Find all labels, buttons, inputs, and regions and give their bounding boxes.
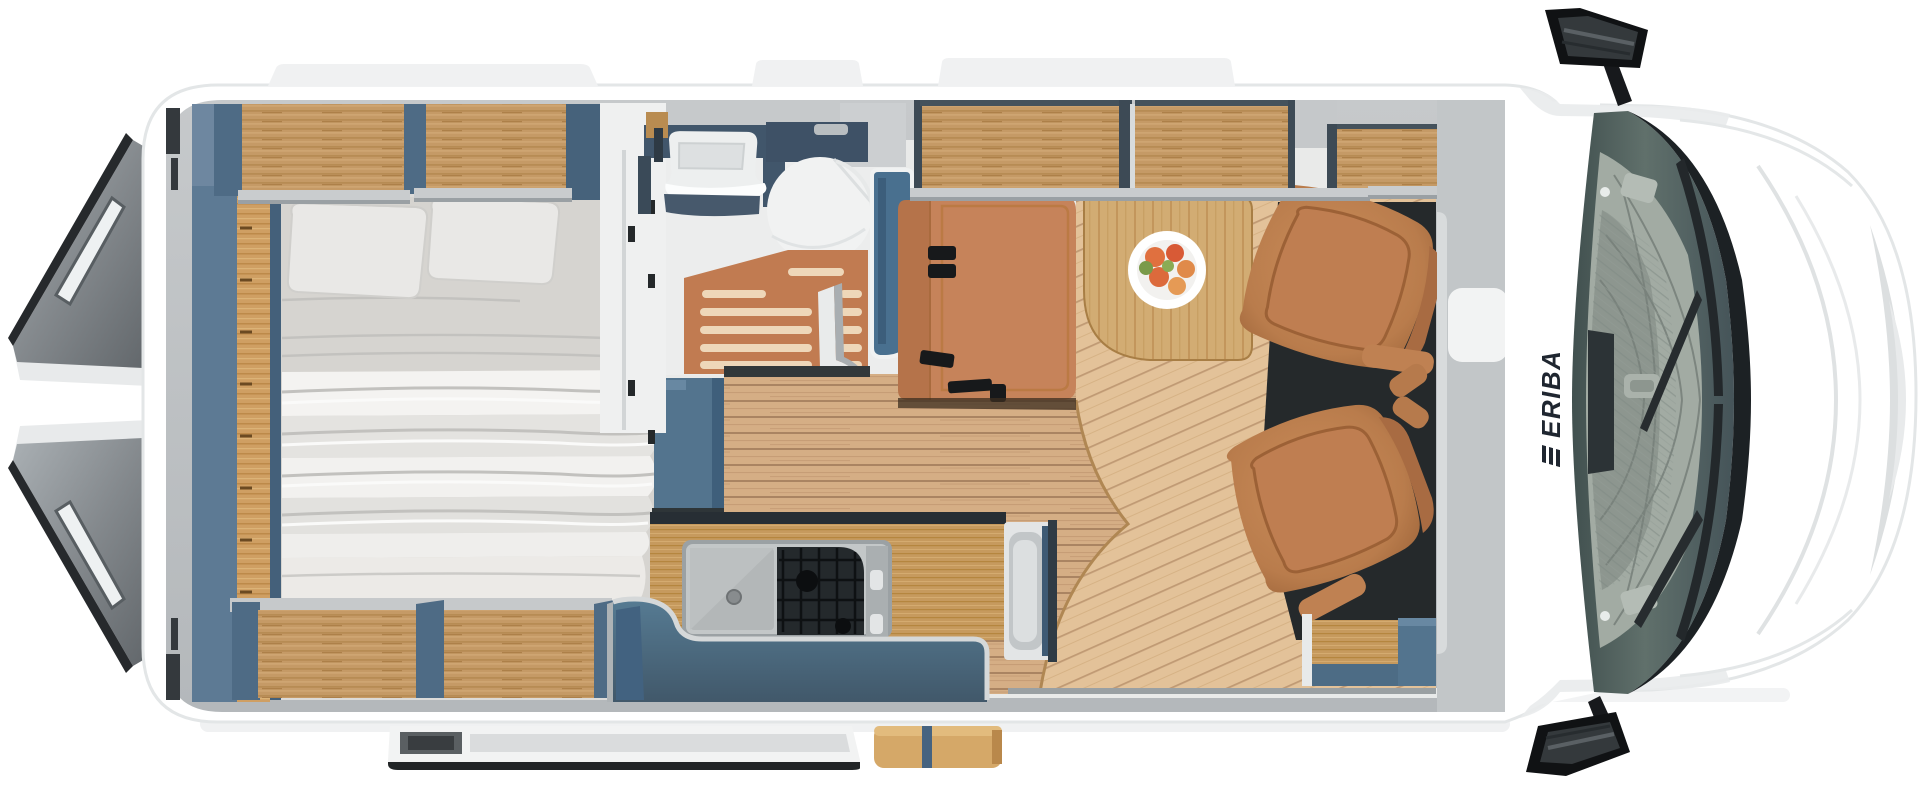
svg-text:ERIBA: ERIBA: [1536, 350, 1566, 438]
